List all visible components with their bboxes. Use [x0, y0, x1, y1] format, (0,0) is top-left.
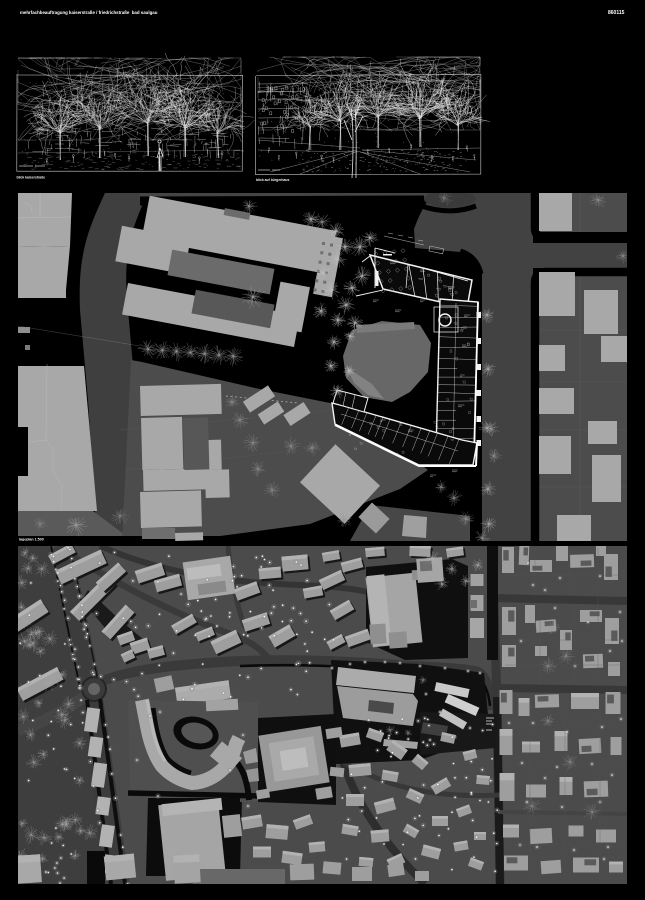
svg-text:blick kaiserstraße: blick kaiserstraße — [17, 176, 46, 180]
svg-text:860115: 860115 — [608, 10, 625, 16]
svg-text:mehrfachbeauftragung kaiserstr: mehrfachbeauftragung kaiserstraße / frie… — [20, 10, 158, 15]
svg-text:lageplan 1:500: lageplan 1:500 — [19, 538, 44, 542]
svg-text:blick auf bürgerhaus: blick auf bürgerhaus — [256, 178, 289, 182]
